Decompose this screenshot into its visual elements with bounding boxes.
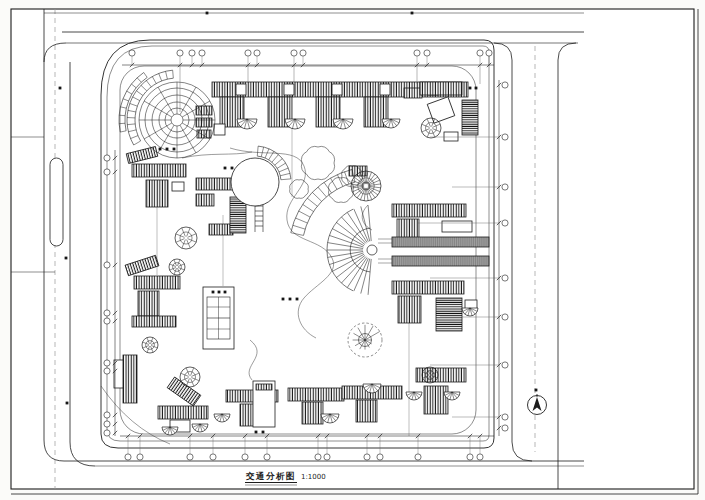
grid-bubble xyxy=(254,50,260,56)
building-block xyxy=(442,221,472,232)
grid-bubble xyxy=(291,50,297,56)
grid-bubble xyxy=(104,318,110,324)
grid-bubble xyxy=(177,50,183,56)
building-block xyxy=(209,224,233,235)
building-block xyxy=(424,386,448,414)
building-block xyxy=(158,406,208,419)
grid-bubble xyxy=(264,454,270,460)
grid-bubble xyxy=(502,134,508,140)
grid-bubble xyxy=(377,454,383,460)
grid-bubble xyxy=(502,425,508,431)
grid-bubble xyxy=(315,454,321,460)
annotation-mark xyxy=(224,291,227,294)
drawing-title: 交通分析图 xyxy=(245,471,296,481)
building-block xyxy=(146,180,168,207)
annotation-mark xyxy=(59,87,62,90)
annotation-mark xyxy=(535,389,538,392)
grid-bubble xyxy=(242,454,248,460)
grid-bubble xyxy=(502,362,508,368)
grid-bubble xyxy=(104,155,110,161)
building-block xyxy=(356,400,377,422)
grid-bubble xyxy=(502,414,508,420)
annotation-mark xyxy=(212,291,215,294)
building-block xyxy=(284,84,294,95)
building-block xyxy=(123,355,137,403)
grid-bubble xyxy=(467,454,473,460)
annotation-mark xyxy=(262,431,265,434)
annotation-mark xyxy=(469,87,472,90)
annotation-mark xyxy=(475,87,478,90)
grid-bubble xyxy=(125,454,131,460)
building-block xyxy=(172,182,184,191)
annotation-mark xyxy=(166,148,169,151)
grid-bubble xyxy=(104,169,110,175)
building-block xyxy=(436,298,462,331)
grid-bubble xyxy=(477,50,483,56)
grid-bubble xyxy=(486,50,492,56)
building-block xyxy=(138,291,159,316)
annotation-mark xyxy=(255,431,258,434)
annotation-mark xyxy=(218,291,221,294)
building-block xyxy=(214,124,225,135)
grid-bubble xyxy=(104,412,110,418)
grid-bubble xyxy=(364,454,370,460)
cad-viewport: 交通分析图 1:1000 xyxy=(0,0,705,500)
annotation-mark xyxy=(224,167,227,170)
annotation-mark xyxy=(66,402,69,405)
annotation-mark xyxy=(296,298,299,301)
building-block xyxy=(444,132,458,141)
building-block xyxy=(398,296,421,323)
building-block xyxy=(256,384,272,390)
grid-bubble xyxy=(210,454,216,460)
annotation-mark xyxy=(206,12,209,15)
median-island xyxy=(50,158,63,246)
grid-bubble xyxy=(300,50,306,56)
grid-bubble xyxy=(189,50,195,56)
building-block xyxy=(196,194,214,206)
drawing-scale: 1:1000 xyxy=(301,473,326,481)
grid-bubble xyxy=(477,454,483,460)
annotation-mark xyxy=(282,298,285,301)
pergola-band xyxy=(392,237,489,247)
grid-bubble xyxy=(104,430,110,436)
annotation-mark xyxy=(173,148,176,151)
annotation-mark xyxy=(159,148,162,151)
grid-bubble xyxy=(502,275,508,281)
grid-bubble xyxy=(199,50,205,56)
grid-bubble xyxy=(187,454,193,460)
building-block xyxy=(462,100,478,135)
building-block xyxy=(392,204,466,217)
building-block xyxy=(114,360,124,388)
building-block xyxy=(302,402,323,424)
grid-bubble xyxy=(104,368,110,374)
annotation-mark xyxy=(411,12,414,15)
annotation-mark xyxy=(231,167,234,170)
building-block xyxy=(132,164,186,177)
grid-bubble xyxy=(414,50,420,56)
building-block xyxy=(132,316,176,327)
building-block xyxy=(196,118,212,127)
grid-bubble xyxy=(104,360,110,366)
grid-bubble xyxy=(424,50,430,56)
plan-feature xyxy=(231,158,279,206)
building-block xyxy=(332,84,342,95)
building-block xyxy=(380,84,390,95)
grid-bubble xyxy=(502,220,508,226)
grid-bubble xyxy=(502,82,508,88)
building-block xyxy=(420,82,462,95)
annotation-mark xyxy=(65,257,68,260)
grid-bubble xyxy=(502,184,508,190)
grid-bubble xyxy=(129,50,135,56)
grid-bubble xyxy=(415,454,421,460)
building-block xyxy=(134,276,180,289)
grid-bubble xyxy=(245,50,251,56)
grid-bubble xyxy=(104,262,110,268)
grid-bubble xyxy=(104,421,110,427)
grid-bubble xyxy=(502,314,508,320)
pergola-band xyxy=(392,256,489,266)
site-plan-drawing: 交通分析图 1:1000 xyxy=(0,0,705,500)
grid-bubble xyxy=(324,454,330,460)
building-block xyxy=(404,88,422,98)
building-block xyxy=(288,388,344,401)
building-block xyxy=(236,84,246,95)
building-block xyxy=(392,281,464,294)
annotation-mark xyxy=(289,298,292,301)
grid-bubble xyxy=(104,310,110,316)
grid-bubble xyxy=(137,454,143,460)
